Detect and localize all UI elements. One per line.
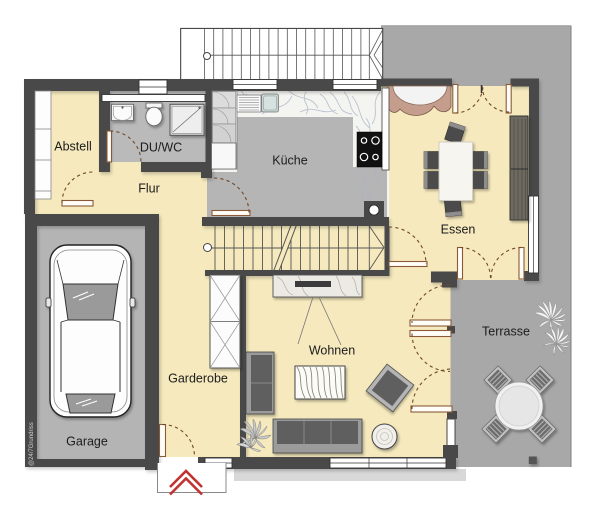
svg-text:Garderobe: Garderobe bbox=[168, 372, 228, 386]
svg-text:Essen: Essen bbox=[441, 223, 476, 237]
svg-text:Flur: Flur bbox=[138, 182, 160, 196]
svg-text:Abstell: Abstell bbox=[54, 140, 92, 154]
svg-text:@24/7Grundriss: @24/7Grundriss bbox=[29, 422, 35, 466]
svg-text:DU/WC: DU/WC bbox=[140, 141, 182, 155]
svg-text:Garage: Garage bbox=[66, 435, 108, 449]
svg-text:Küche: Küche bbox=[272, 154, 307, 168]
svg-text:Wohnen: Wohnen bbox=[309, 344, 355, 358]
svg-text:Terrasse: Terrasse bbox=[482, 325, 530, 339]
